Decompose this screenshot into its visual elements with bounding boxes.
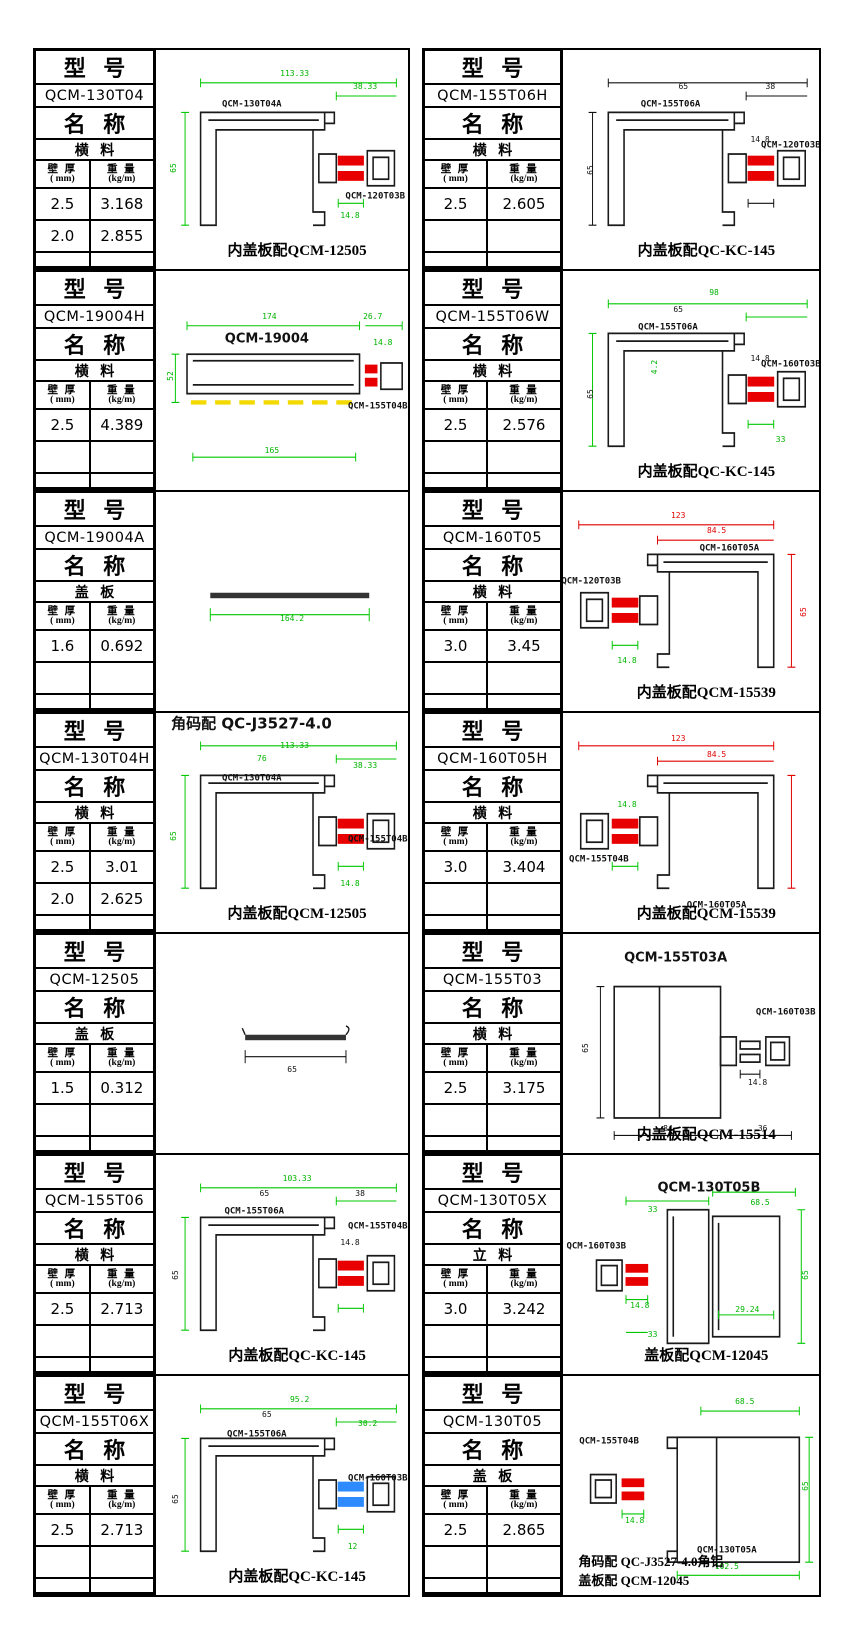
profile-outline [563, 492, 819, 711]
drawing-annotation: QCM-130T04A [222, 774, 282, 783]
weight-value [90, 441, 154, 473]
wall-thickness-value: 2.5 [424, 188, 487, 220]
weight-value [487, 662, 561, 694]
empty-cell [90, 930, 154, 932]
name-header: 名 称 [35, 107, 154, 139]
drawing-caption: 内盖板配QCM-15514 [637, 1123, 776, 1144]
profile-drawing: 68.5QCM-155T04B14.865QCM-130T05A102.5角码配… [563, 1376, 819, 1595]
drawing-caption: 内盖板配QCM-15539 [637, 902, 776, 923]
name-value: 横 料 [35, 802, 154, 823]
model-header: 型 号 [35, 1155, 154, 1189]
empty-cell [90, 1151, 154, 1153]
profile-drawing: 角码配 QC-J3527-4.0113.337638.33QCM-130T04A… [156, 713, 408, 932]
profile-drawing: 12384.5QCM-160T05AQCM-120T03B6514.8内盖板配Q… [563, 492, 819, 711]
drawing-annotation: 123 [671, 512, 685, 520]
weight-value [90, 915, 154, 930]
wall-thickness-value [424, 441, 487, 473]
drawing-annotation: 33 [648, 1206, 658, 1214]
drawing-annotation: 14.8 [340, 1239, 359, 1247]
spec-table: 型 号QCM-130T05X名 称立 料壁 厚( mm)重 量(kg/m)3.0… [424, 1155, 563, 1374]
name-value: 横 料 [35, 1465, 154, 1486]
drawing-annotation: 68.5 [750, 1199, 769, 1207]
profile-outline [156, 1155, 408, 1374]
wall-thickness-value [35, 662, 90, 694]
empty-cell [35, 488, 90, 490]
spec-block: 型 号QCM-130T04H名 称横 料壁 厚( mm)重 量(kg/m)2.5… [33, 711, 410, 934]
name-header: 名 称 [35, 770, 154, 802]
wall-thickness-value: 2.5 [35, 1293, 90, 1325]
name-value: 立 料 [424, 1244, 561, 1265]
drawing-annotation: 65 [673, 306, 683, 314]
profile-drawing: 9865QCM-155T06A4.26514.8QCM-160T03B33内盖板… [563, 271, 819, 490]
profile-drawing: 113.3338.33QCM-130T04A6514.8QCM-120T03B内… [156, 50, 408, 269]
wall-thickness-value [35, 473, 90, 488]
wall-thickness-value [424, 662, 487, 694]
empty-cell [424, 1593, 487, 1595]
model-header: 型 号 [424, 271, 561, 305]
weight-value [90, 1578, 154, 1593]
drawing-annotation: 76 [257, 755, 267, 763]
weight-header: 重 量(kg/m) [487, 160, 561, 188]
wall-thickness-value [35, 1357, 90, 1372]
column-left: 型 号QCM-130T04名 称横 料壁 厚( mm)重 量(kg/m)2.53… [33, 48, 410, 1597]
spec-table: 型 号QCM-19004H名 称横 料壁 厚( mm)重 量(kg/m)2.54… [35, 271, 156, 490]
wall-thickness-header: 壁 厚( mm) [35, 602, 90, 630]
drawing-annotation: QCM-120T03B [345, 192, 405, 201]
model-value: QCM-155T03 [424, 968, 561, 991]
drawing-annotation: 65 [287, 1066, 297, 1074]
model-value: QCM-155T06X [35, 1410, 154, 1433]
spec-block: 型 号QCM-160T05H名 称横 料壁 厚( mm)重 量(kg/m)3.0… [422, 711, 821, 934]
spec-sheet: 型 号QCM-130T04名 称横 料壁 厚( mm)重 量(kg/m)2.53… [0, 0, 848, 1639]
weight-value [90, 252, 154, 267]
drawing-annotation: 12 [348, 1543, 358, 1551]
name-value: 盖 板 [35, 581, 154, 602]
wall-thickness-value [424, 252, 487, 267]
weight-header: 重 量(kg/m) [90, 1265, 154, 1293]
profile-drawing: 164.2 [156, 492, 408, 711]
spec-block: 型 号QCM-155T03名 称横 料壁 厚( mm)重 量(kg/m)2.53… [422, 932, 821, 1155]
spec-block: 型 号QCM-155T06H名 称横 料壁 厚( mm)重 量(kg/m)2.5… [422, 48, 821, 271]
spec-table: 型 号QCM-155T06名 称横 料壁 厚( mm)重 量(kg/m)2.52… [35, 1155, 156, 1374]
model-header: 型 号 [35, 492, 154, 526]
drawing-annotation: 65 [802, 1271, 810, 1281]
weight-value: 3.168 [90, 188, 154, 220]
empty-cell [90, 1372, 154, 1374]
wall-thickness-value: 2.5 [35, 188, 90, 220]
drawing-annotation: 84.5 [707, 527, 726, 535]
empty-cell [424, 1372, 487, 1374]
profile-outline [563, 271, 819, 490]
drawing-caption: 角码配 QC-J3527-4.0角铝盖板配 QCM-12045 [578, 1552, 723, 1591]
empty-cell [90, 1593, 154, 1595]
spec-block: 型 号QCM-155T06X名 称横 料壁 厚( mm)重 量(kg/m)2.5… [33, 1374, 410, 1597]
drawing-annotation: 65 [587, 389, 595, 399]
name-header: 名 称 [424, 991, 561, 1023]
drawing-annotation: QCM-155T06A [638, 323, 698, 332]
profile-outline [156, 934, 408, 1153]
drawing-annotation: 98 [709, 289, 719, 297]
drawing-annotation: 14.8 [617, 801, 636, 809]
spec-table: 型 号QCM-12505名 称盖 板壁 厚( mm)重 量(kg/m)1.50.… [35, 934, 156, 1153]
drawing-annotation: QCM-160T05A [700, 544, 760, 553]
drawing-annotation: 65 [170, 163, 178, 173]
model-value: QCM-19004A [35, 526, 154, 549]
model-header: 型 号 [424, 1376, 561, 1410]
drawing-annotation: 65 [678, 83, 688, 91]
name-header: 名 称 [35, 1433, 154, 1465]
weight-value [90, 1136, 154, 1151]
empty-cell [35, 267, 90, 269]
profile-drawing: 17426.7QCM-190045214.8QCM-155T04B165 [156, 271, 408, 490]
weight-value: 2.576 [487, 409, 561, 441]
wall-thickness-value [35, 1546, 90, 1578]
drawing-annotation: 38.33 [353, 762, 377, 770]
empty-cell [35, 1593, 90, 1595]
weight-value: 0.312 [90, 1072, 154, 1104]
weight-value [487, 1325, 561, 1357]
name-value: 横 料 [35, 1244, 154, 1265]
weight-value [487, 252, 561, 267]
drawing-annotation: 65 [800, 608, 808, 618]
spec-table: 型 号QCM-155T06X名 称横 料壁 厚( mm)重 量(kg/m)2.5… [35, 1376, 156, 1595]
drawing-annotation: 14.8 [630, 1302, 649, 1310]
wall-thickness-value [35, 441, 90, 473]
empty-cell [35, 930, 90, 932]
drawing-annotation: QCM-155T06A [224, 1207, 284, 1216]
drawing-annotation: 65 [170, 831, 178, 841]
weight-value [90, 473, 154, 488]
drawing-annotation: 38 [766, 83, 776, 91]
drawing-annotation: 26.7 [363, 313, 382, 321]
drawing-annotation: 14.8 [617, 657, 636, 665]
wall-thickness-value [424, 915, 487, 930]
empty-cell [35, 1151, 90, 1153]
model-value: QCM-130T04H [35, 747, 154, 770]
weight-value: 2.713 [90, 1514, 154, 1546]
wall-thickness-value: 2.5 [424, 1514, 487, 1546]
weight-value: 2.855 [90, 220, 154, 252]
name-header: 名 称 [35, 991, 154, 1023]
weight-value [90, 1546, 154, 1578]
weight-value [487, 694, 561, 709]
drawing-annotation: QCM-160T03B [566, 1242, 626, 1251]
wall-thickness-header: 壁 厚( mm) [35, 160, 90, 188]
drawing-annotation: 38 [355, 1190, 365, 1198]
spec-table: 型 号QCM-155T03名 称横 料壁 厚( mm)重 量(kg/m)2.53… [424, 934, 563, 1153]
name-value: 横 料 [35, 139, 154, 160]
drawing-annotation: 164.2 [280, 615, 304, 623]
drawing-caption: 内盖板配QC-KC-145 [228, 1344, 366, 1365]
wall-thickness-header: 壁 厚( mm) [35, 1265, 90, 1293]
drawing-annotation: QCM-120T03B [761, 142, 819, 151]
model-header: 型 号 [35, 713, 154, 747]
wall-thickness-value: 3.0 [424, 851, 487, 883]
profile-drawing: 6538QCM-155T06A6514.8QCM-120T03B内盖板配QC-K… [563, 50, 819, 269]
model-header: 型 号 [424, 50, 561, 84]
wall-thickness-value: 2.5 [35, 409, 90, 441]
drawing-annotation: 14.8 [748, 1079, 767, 1087]
empty-cell [487, 488, 561, 490]
drawing-annotation: QCM-155T04B [569, 855, 629, 864]
weight-value [487, 1136, 561, 1151]
weight-value [90, 1104, 154, 1136]
name-header: 名 称 [35, 1212, 154, 1244]
drawing-annotation: QCM-155T04B [579, 1437, 639, 1446]
spec-block: 型 号QCM-19004H名 称横 料壁 厚( mm)重 量(kg/m)2.54… [33, 269, 410, 492]
empty-cell [487, 1372, 561, 1374]
weight-header: 重 量(kg/m) [487, 1486, 561, 1514]
weight-value [90, 662, 154, 694]
drawing-annotation: QCM-155T04B [348, 1223, 408, 1232]
wall-thickness-header: 壁 厚( mm) [424, 1486, 487, 1514]
model-value: QCM-160T05 [424, 526, 561, 549]
wall-thickness-value [424, 220, 487, 252]
drawing-annotation: 95.2 [290, 1396, 309, 1404]
wall-thickness-value: 3.0 [424, 1293, 487, 1325]
weight-value [487, 1357, 561, 1372]
name-header: 名 称 [424, 1212, 561, 1244]
spec-table: 型 号QCM-155T06W名 称横 料壁 厚( mm)重 量(kg/m)2.5… [424, 271, 563, 490]
column-right: 型 号QCM-155T06H名 称横 料壁 厚( mm)重 量(kg/m)2.5… [422, 48, 821, 1597]
drawing-caption: 内盖板配QCM-12505 [228, 902, 367, 923]
wall-thickness-value [424, 1325, 487, 1357]
wall-thickness-header: 壁 厚( mm) [424, 823, 487, 851]
spec-block: 型 号QCM-155T06W名 称横 料壁 厚( mm)重 量(kg/m)2.5… [422, 269, 821, 492]
model-value: QCM-155T06 [35, 1189, 154, 1212]
model-value: QCM-160T05H [424, 747, 561, 770]
model-value: QCM-19004H [35, 305, 154, 328]
drawing-annotation: QCM-155T06A [641, 100, 701, 109]
weight-value [487, 1578, 561, 1593]
wall-thickness-header: 壁 厚( mm) [424, 160, 487, 188]
wall-thickness-header: 壁 厚( mm) [424, 1265, 487, 1293]
weight-value: 4.389 [90, 409, 154, 441]
model-header: 型 号 [424, 1155, 561, 1189]
empty-cell [90, 267, 154, 269]
name-value: 盖 板 [424, 1465, 561, 1486]
spec-table: 型 号QCM-160T05H名 称横 料壁 厚( mm)重 量(kg/m)3.0… [424, 713, 563, 932]
empty-cell [424, 1151, 487, 1153]
spec-table: 型 号QCM-155T06H名 称横 料壁 厚( mm)重 量(kg/m)2.5… [424, 50, 563, 269]
drawing-caption: 内盖板配QCM-12505 [228, 239, 367, 260]
drawing-annotation: 30.2 [358, 1420, 377, 1428]
weight-value [487, 883, 561, 915]
name-header: 名 称 [424, 1433, 561, 1465]
weight-value [487, 1546, 561, 1578]
drawing-annotation: 14.8 [373, 339, 392, 347]
name-header: 名 称 [424, 107, 561, 139]
empty-cell [90, 488, 154, 490]
empty-cell [487, 930, 561, 932]
weight-value [487, 220, 561, 252]
profile-drawing: QCM-130T05B3368.5QCM-160T03B14.829.24653… [563, 1155, 819, 1374]
model-header: 型 号 [424, 492, 561, 526]
wall-thickness-value: 2.5 [35, 851, 90, 883]
wall-thickness-value [35, 1325, 90, 1357]
wall-thickness-value: 1.5 [35, 1072, 90, 1104]
drawing-annotation: 113.33 [280, 70, 309, 78]
profile-drawing: 65 [156, 934, 408, 1153]
drawing-annotation: 65 [582, 1043, 590, 1053]
name-value: 横 料 [424, 581, 561, 602]
drawing-annotation: QCM-155T04B [348, 836, 408, 845]
drawing-annotation: 65 [802, 1481, 810, 1491]
drawing-annotation: QCM-160T03B [761, 361, 819, 370]
drawing-caption: 盖板配QCM-12045 [644, 1344, 768, 1365]
name-header: 名 称 [35, 328, 154, 360]
weight-header: 重 量(kg/m) [487, 602, 561, 630]
weight-header: 重 量(kg/m) [90, 381, 154, 409]
wall-thickness-value [424, 694, 487, 709]
name-value: 横 料 [424, 802, 561, 823]
drawing-annotation: 14.8 [625, 1517, 644, 1525]
profile-outline [156, 271, 408, 490]
weight-value [487, 473, 561, 488]
drawing-annotation: QCM-130T04A [222, 100, 282, 109]
wall-thickness-value [35, 915, 90, 930]
model-header: 型 号 [424, 713, 561, 747]
spec-block: 型 号QCM-130T04名 称横 料壁 厚( mm)重 量(kg/m)2.53… [33, 48, 410, 271]
name-header: 名 称 [35, 549, 154, 581]
profile-drawing: 103.336538QCM-155T06A6514.8QCM-155T04B内盖… [156, 1155, 408, 1374]
drawing-annotation: 68.5 [735, 1398, 754, 1406]
model-value: QCM-155T06W [424, 305, 561, 328]
wall-thickness-value: 2.0 [35, 220, 90, 252]
wall-thickness-value [35, 1104, 90, 1136]
spec-block: 型 号QCM-160T05名 称横 料壁 厚( mm)重 量(kg/m)3.03… [422, 490, 821, 713]
weight-value [90, 1325, 154, 1357]
name-header: 名 称 [424, 328, 561, 360]
profile-outline [563, 713, 819, 932]
wall-thickness-value [35, 1578, 90, 1593]
weight-value: 2.625 [90, 883, 154, 915]
weight-value [90, 1357, 154, 1372]
spec-block: 型 号QCM-12505名 称盖 板壁 厚( mm)重 量(kg/m)1.50.… [33, 932, 410, 1155]
wall-thickness-value [424, 1357, 487, 1372]
spec-table: 型 号QCM-19004A名 称盖 板壁 厚( mm)重 量(kg/m)1.60… [35, 492, 156, 711]
weight-value: 2.713 [90, 1293, 154, 1325]
wall-thickness-value [424, 1578, 487, 1593]
wall-thickness-header: 壁 厚( mm) [424, 602, 487, 630]
drawing-caption: 内盖板配QC-KC-145 [228, 1565, 366, 1586]
name-value: 盖 板 [35, 1023, 154, 1044]
drawing-annotation: 103.33 [283, 1175, 312, 1183]
weight-header: 重 量(kg/m) [487, 381, 561, 409]
drawing-annotation: 33 [648, 1331, 658, 1339]
model-value: QCM-12505 [35, 968, 154, 991]
profile-outline [156, 1376, 408, 1595]
empty-cell [487, 267, 561, 269]
drawing-caption: 内盖板配QC-KC-145 [638, 239, 776, 260]
drawing-annotation: 14.8 [340, 212, 359, 220]
drawing-annotation: 165 [265, 447, 279, 455]
wall-thickness-value: 2.0 [35, 883, 90, 915]
model-header: 型 号 [35, 50, 154, 84]
drawing-annotation: 113.33 [280, 742, 309, 750]
wall-thickness-header: 壁 厚( mm) [35, 1044, 90, 1072]
profile-outline [563, 50, 819, 269]
name-value: 横 料 [424, 360, 561, 381]
weight-value: 0.692 [90, 630, 154, 662]
spec-block: 型 号QCM-19004A名 称盖 板壁 厚( mm)重 量(kg/m)1.60… [33, 490, 410, 713]
weight-value: 2.865 [487, 1514, 561, 1546]
name-header: 名 称 [424, 549, 561, 581]
name-value: 横 料 [424, 139, 561, 160]
empty-cell [424, 488, 487, 490]
weight-value: 3.404 [487, 851, 561, 883]
wall-thickness-value [424, 883, 487, 915]
drawing-annotation: 65 [260, 1190, 270, 1198]
weight-header: 重 量(kg/m) [487, 823, 561, 851]
spec-block: 型 号QCM-130T05名 称盖 板壁 厚( mm)重 量(kg/m)2.52… [422, 1374, 821, 1597]
drawing-annotation: QCM-120T03B [563, 577, 621, 586]
weight-header: 重 量(kg/m) [487, 1044, 561, 1072]
wall-thickness-value [35, 252, 90, 267]
spec-table: 型 号QCM-130T05名 称盖 板壁 厚( mm)重 量(kg/m)2.52… [424, 1376, 563, 1595]
drawing-annotation: 52 [167, 371, 175, 381]
wall-thickness-value: 2.5 [35, 1514, 90, 1546]
weight-value: 2.605 [487, 188, 561, 220]
drawing-annotation: QCM-160T03B [756, 1008, 816, 1017]
spec-table: 型 号QCM-130T04H名 称横 料壁 厚( mm)重 量(kg/m)2.5… [35, 713, 156, 932]
profile-drawing: 12384.514.8QCM-155T04BQCM-160T05A内盖板配QCM… [563, 713, 819, 932]
empty-cell [487, 1593, 561, 1595]
drawing-annotation: 123 [671, 735, 685, 743]
wall-thickness-value [424, 1546, 487, 1578]
model-header: 型 号 [35, 1376, 154, 1410]
wall-thickness-value [424, 1104, 487, 1136]
spec-block: 型 号QCM-155T06名 称横 料壁 厚( mm)重 量(kg/m)2.52… [33, 1153, 410, 1376]
weight-header: 重 量(kg/m) [90, 823, 154, 851]
weight-value: 3.175 [487, 1072, 561, 1104]
drawing-caption: 内盖板配QCM-15539 [637, 681, 776, 702]
wall-thickness-header: 壁 厚( mm) [424, 381, 487, 409]
name-header: 名 称 [424, 770, 561, 802]
weight-value [90, 694, 154, 709]
drawing-annotation: QCM-19004 [225, 332, 309, 345]
drawing-annotation: 4.2 [651, 360, 659, 374]
model-value: QCM-130T04 [35, 84, 154, 107]
model-header: 型 号 [424, 934, 561, 968]
model-value: QCM-130T05X [424, 1189, 561, 1212]
weight-header: 重 量(kg/m) [90, 1044, 154, 1072]
drawing-annotation: 65 [172, 1494, 180, 1504]
profile-outline [563, 934, 819, 1153]
model-header: 型 号 [35, 271, 154, 305]
drawing-annotation: QCM-160T03B [348, 1474, 408, 1483]
drawing-annotation: 38.33 [353, 83, 377, 91]
wall-thickness-value: 3.0 [424, 630, 487, 662]
drawing-annotation: 84.5 [707, 751, 726, 759]
spec-table: 型 号QCM-130T04名 称横 料壁 厚( mm)重 量(kg/m)2.53… [35, 50, 156, 269]
weight-header: 重 量(kg/m) [487, 1265, 561, 1293]
weight-value [487, 441, 561, 473]
profile-drawing: 95.26530.2QCM-155T06A65QCM-160T03B12内盖板配… [156, 1376, 408, 1595]
wall-thickness-value [35, 694, 90, 709]
wall-thickness-value [424, 473, 487, 488]
drawing-annotation: QCM-155T06A [227, 1431, 287, 1440]
model-header: 型 号 [35, 934, 154, 968]
spec-block: 型 号QCM-130T05X名 称立 料壁 厚( mm)重 量(kg/m)3.0… [422, 1153, 821, 1376]
weight-value [487, 915, 561, 930]
name-value: 横 料 [424, 1023, 561, 1044]
empty-cell [424, 267, 487, 269]
drawing-annotation: QCM-155T03A [624, 952, 727, 965]
weight-header: 重 量(kg/m) [90, 160, 154, 188]
empty-cell [424, 709, 487, 711]
drawing-annotation: 29.24 [735, 1306, 759, 1314]
